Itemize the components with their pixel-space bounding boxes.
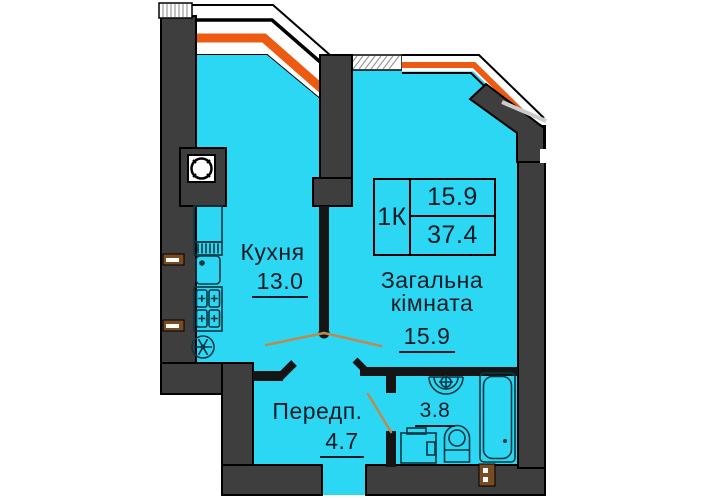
floor-plan-page: Кухня 13.0 Загальна кімната 15.9 Передп.… xyxy=(0,0,707,500)
window-sill-block xyxy=(159,3,192,18)
floor-plan-drawing xyxy=(0,0,707,500)
apartment-info-table: 1К 15.9 37.4 xyxy=(373,178,496,256)
wall-notch xyxy=(540,149,548,163)
living-room-label: Загальна кімната xyxy=(358,269,506,315)
kitchen-area: 13.0 xyxy=(230,270,330,298)
living-area-value: 15.9 xyxy=(411,180,494,217)
ventilation-shaft-icon xyxy=(188,155,215,182)
kitchen-label: Кухня xyxy=(205,241,340,264)
bathroom-area: 3.8 xyxy=(395,399,475,427)
hallway-label: Передп. xyxy=(250,400,385,423)
pipe-riser-icon xyxy=(479,464,495,486)
hallway-area: 4.7 xyxy=(292,430,392,458)
living-room-area: 15.9 xyxy=(377,325,477,353)
total-area-value: 37.4 xyxy=(411,217,494,254)
apartment-type: 1К xyxy=(375,180,411,254)
